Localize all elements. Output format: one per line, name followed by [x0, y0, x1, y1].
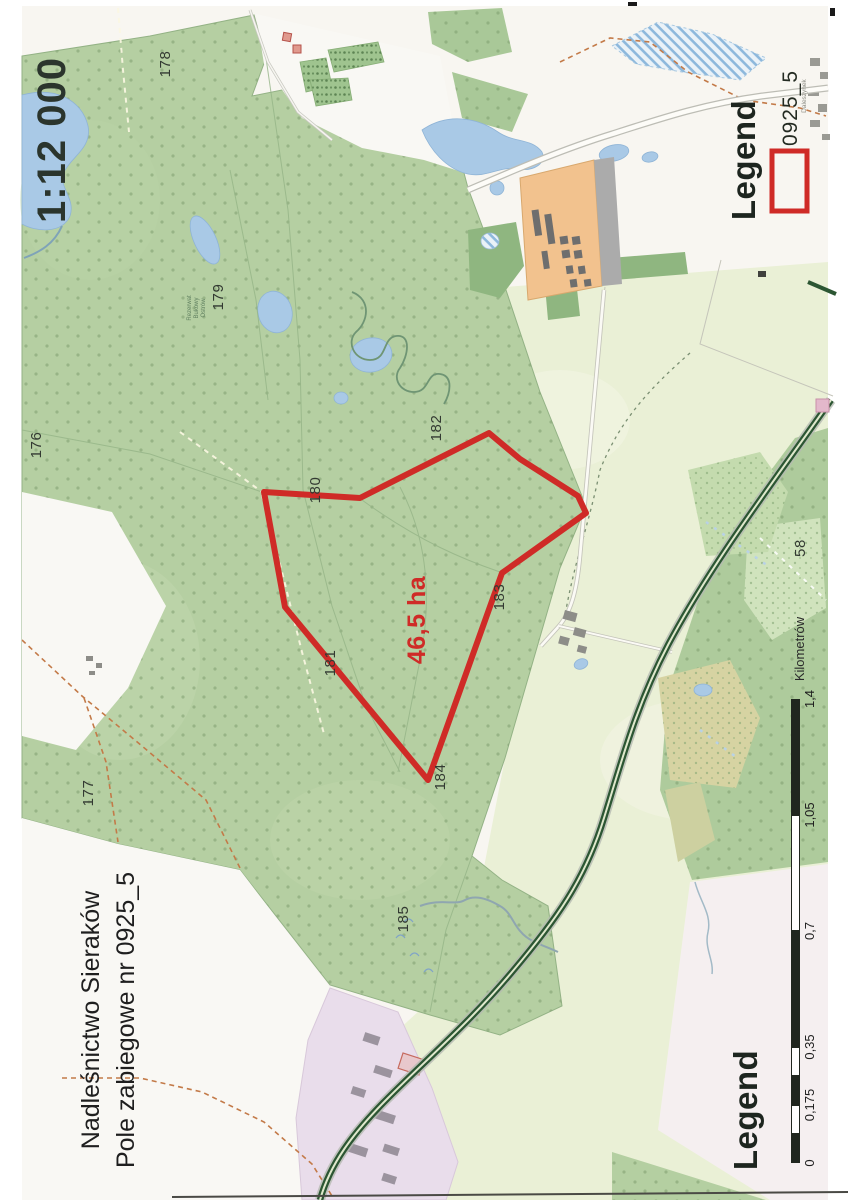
map-title: Nadleśnictwo Sieraków Pole zabiegowe nr … — [74, 860, 146, 1180]
scalebar-segment — [791, 815, 800, 931]
map-title-line2: Pole zabiegowe nr 0925_5 — [109, 860, 144, 1180]
fish-pond — [481, 233, 499, 249]
scalebar-segment — [791, 1047, 800, 1076]
scalebar-tick-label: 1,05 — [802, 780, 818, 850]
scalebar-segment — [791, 1076, 800, 1105]
scalebar-segment — [791, 931, 800, 1047]
scanned-map-page: 1:12 000 Legend 0925_5 46,5 ha Nadleśnic… — [0, 0, 848, 1200]
scalebar-tick-label: 1,4 — [802, 664, 818, 734]
village-area — [520, 157, 622, 300]
scalebar-tick-label: 0,7 — [802, 896, 818, 966]
scalebar-segment — [791, 1105, 800, 1134]
scalebar-tick-label: 0,35 — [802, 1012, 818, 1082]
scalebar-segment — [791, 699, 800, 815]
map-title-line1: Nadleśnictwo Sieraków — [74, 860, 109, 1180]
scalebar-segment — [791, 1134, 800, 1163]
